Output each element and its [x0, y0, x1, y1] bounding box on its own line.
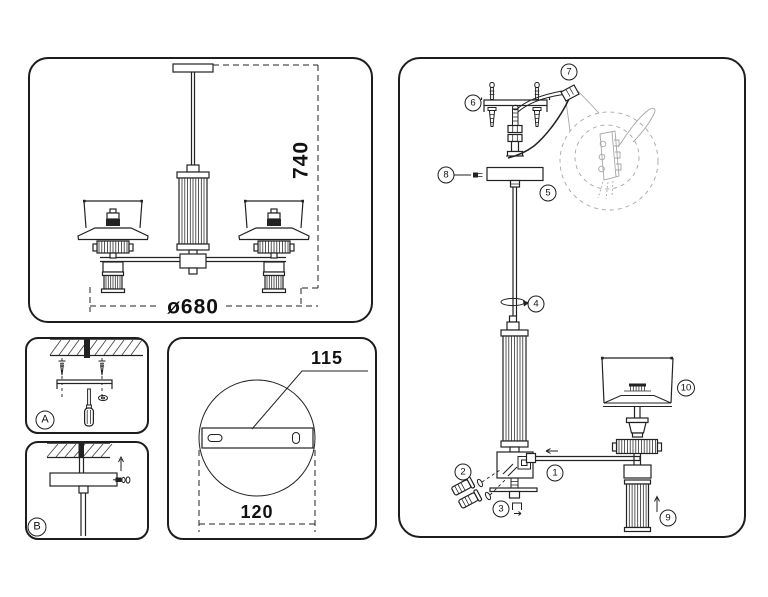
hole-spacing-dimension-label: 115: [309, 349, 345, 367]
plate-width-dimension-label: 120: [238, 503, 275, 521]
instruction-sheet: 740 ø680 115 120 A B 1 2 3 4 5 6 7 8 9 1…: [0, 0, 768, 597]
callout-10: 10: [677, 380, 695, 397]
callout-3: 3: [493, 501, 510, 518]
step-b-badge: B: [28, 518, 47, 537]
callout-2: 2: [455, 464, 472, 481]
diameter-dimension-label: ø680: [165, 297, 221, 318]
callout-7: 7: [561, 64, 578, 81]
callout-1: 1: [547, 465, 564, 482]
callout-8: 8: [438, 167, 455, 184]
callout-9: 9: [660, 510, 677, 527]
step-a-badge: A: [36, 411, 55, 430]
panel-overview-dimensions: [28, 57, 373, 323]
height-dimension-label: 740: [291, 139, 312, 181]
callout-4: 4: [528, 296, 545, 313]
panel-exploded-assembly: [398, 57, 746, 538]
callout-5: 5: [540, 185, 557, 202]
callout-6: 6: [465, 95, 482, 112]
